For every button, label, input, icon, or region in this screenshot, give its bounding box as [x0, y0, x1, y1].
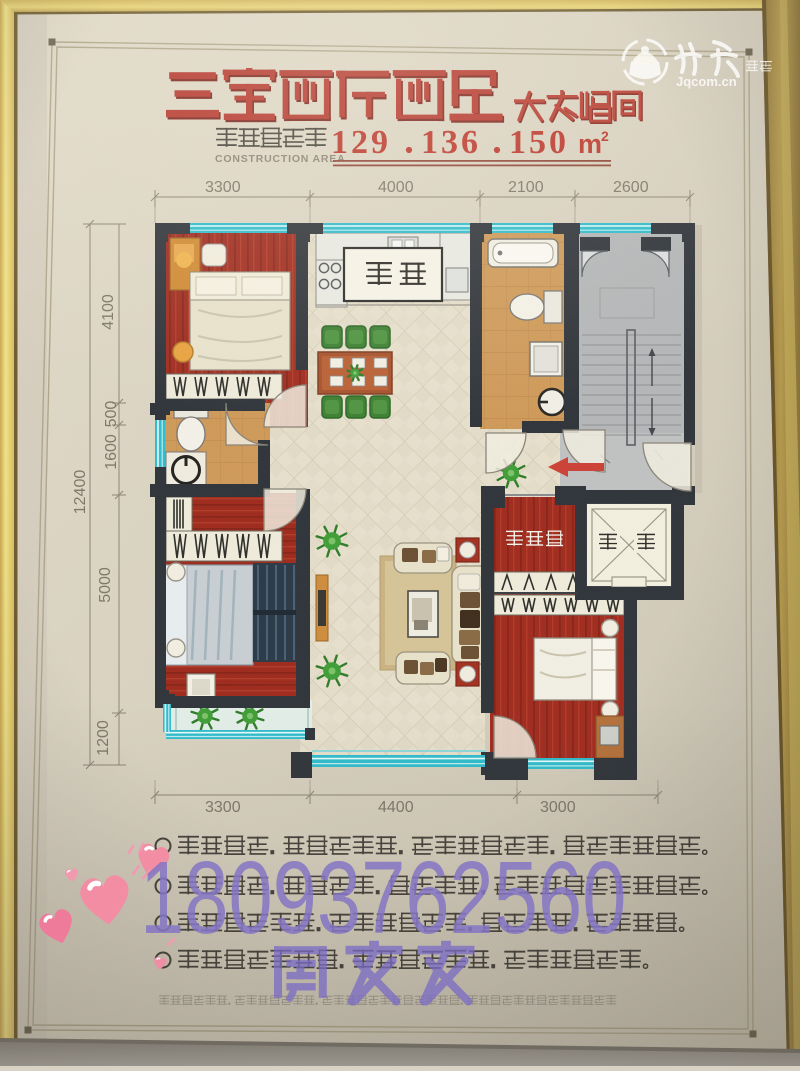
svg-text:Jqcom.cn: Jqcom.cn — [676, 74, 737, 89]
